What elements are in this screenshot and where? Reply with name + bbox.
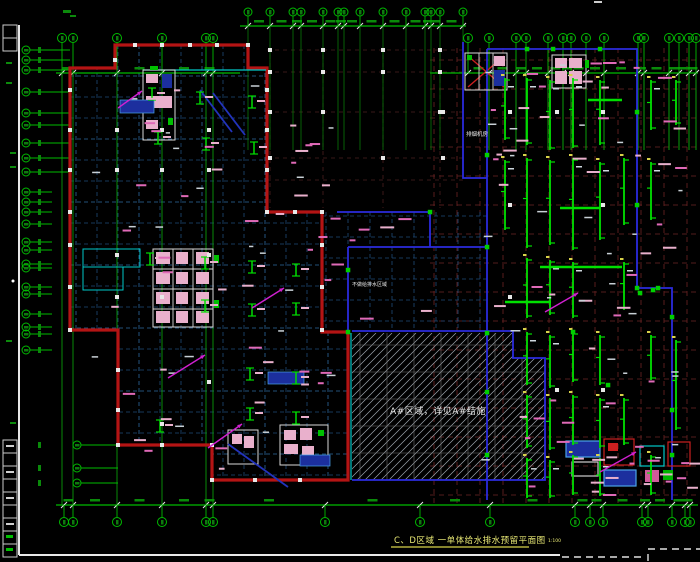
drawing-scale: 1:100 (548, 538, 561, 544)
room-label: 排烟机房 (466, 130, 489, 138)
drawing-geometry (3, 1, 700, 561)
beam-symbols (146, 47, 681, 498)
drawing-viewport[interactable]: 排烟机房不做给排水区域A#区域，详见A#结施C、D区域 一单体给水排水预留平面图… (0, 0, 700, 562)
center-note-label: 不做给排水区域 (352, 281, 387, 288)
hatch-note-label: A#区域，详见A#结施 (390, 405, 486, 417)
drawing-title: C、D区域 一单体给水排水预留平面图 (394, 535, 546, 546)
cad-sheet: 排烟机房不做给排水区域A#区域，详见A#结施C、D区域 一单体给水排水预留平面图… (0, 0, 700, 562)
cyan-lines (83, 70, 351, 480)
title-strip (3, 25, 17, 557)
